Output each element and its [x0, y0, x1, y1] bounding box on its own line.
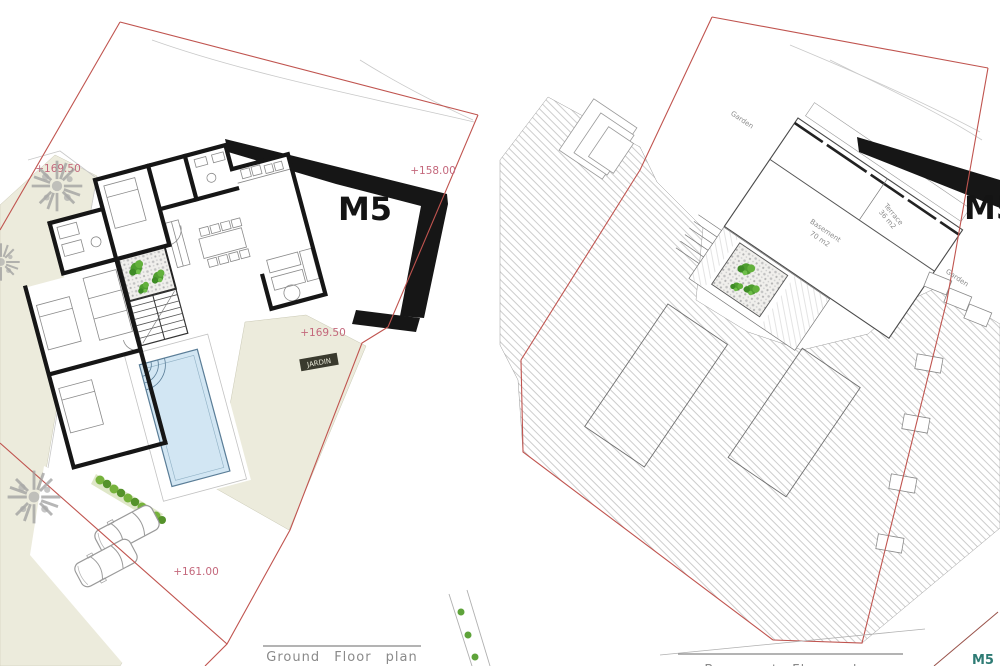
level-label: +169.50	[300, 327, 346, 339]
terrain-contours	[790, 45, 982, 140]
level-label: +158.00	[410, 165, 456, 177]
plot-mark: M5	[338, 190, 392, 228]
ground-floor-plan: +169.50 +158.00 M5 +169.50 JARDIN +161.0…	[0, 22, 490, 666]
basement-floor-plan: Basement 70 m2 Terrace 36 m2 Garden	[500, 17, 1000, 666]
level-label: +161.00	[173, 566, 219, 578]
plan-caption: Ground Floor plan	[266, 650, 418, 665]
garden-area-jardin	[215, 315, 366, 530]
plan-sheet: +169.50 +158.00 M5 +169.50 JARDIN +161.0…	[0, 0, 1000, 666]
corner-plot-mark: M5	[972, 653, 994, 666]
entrance-path	[449, 590, 490, 666]
plot-mark: M5	[964, 189, 1000, 227]
site-plan-drawing: +169.50 +158.00 M5 +169.50 JARDIN +161.0…	[0, 0, 1000, 666]
garden-label: Garden	[729, 110, 755, 131]
